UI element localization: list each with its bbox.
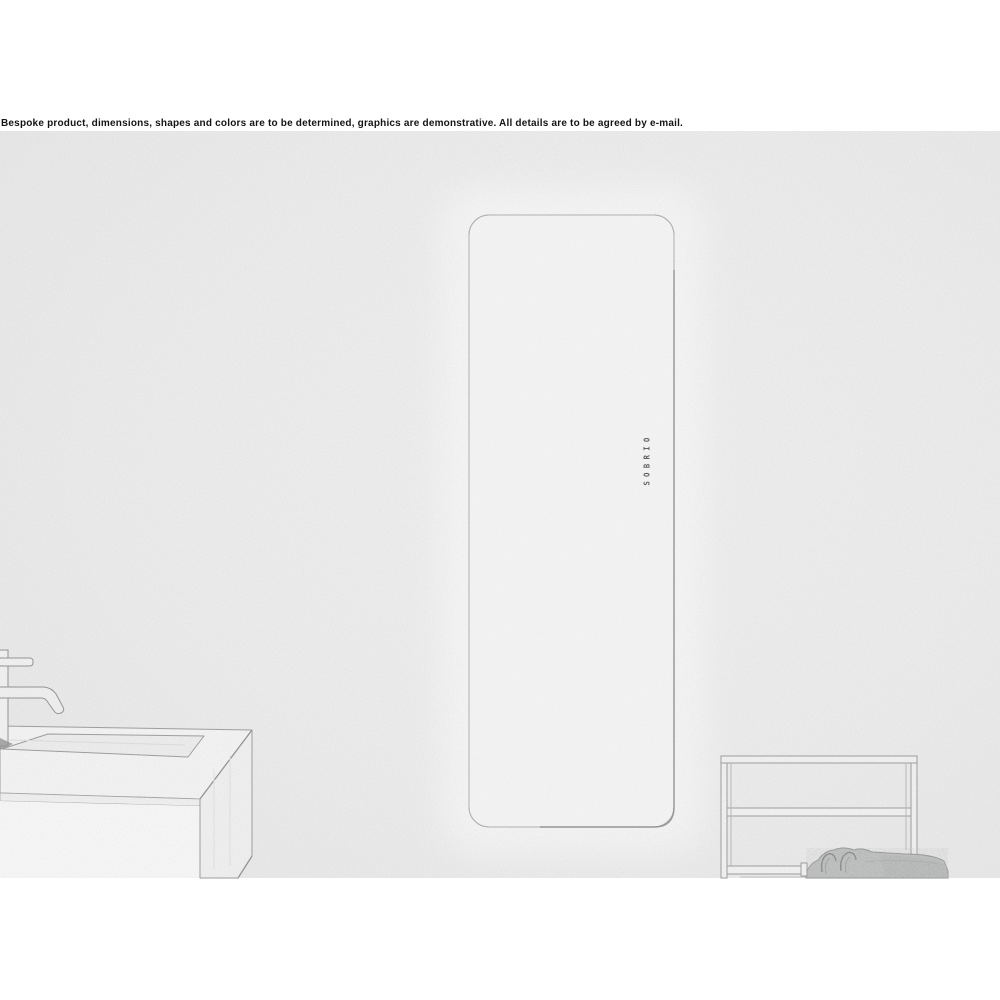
scene-artwork — [0, 0, 1000, 1000]
radiator-brand-logo: SOBRIO — [643, 425, 654, 495]
page: Bespoke product, dimensions, shapes and … — [0, 0, 1000, 1000]
radiator-panel-outline — [469, 215, 674, 827]
